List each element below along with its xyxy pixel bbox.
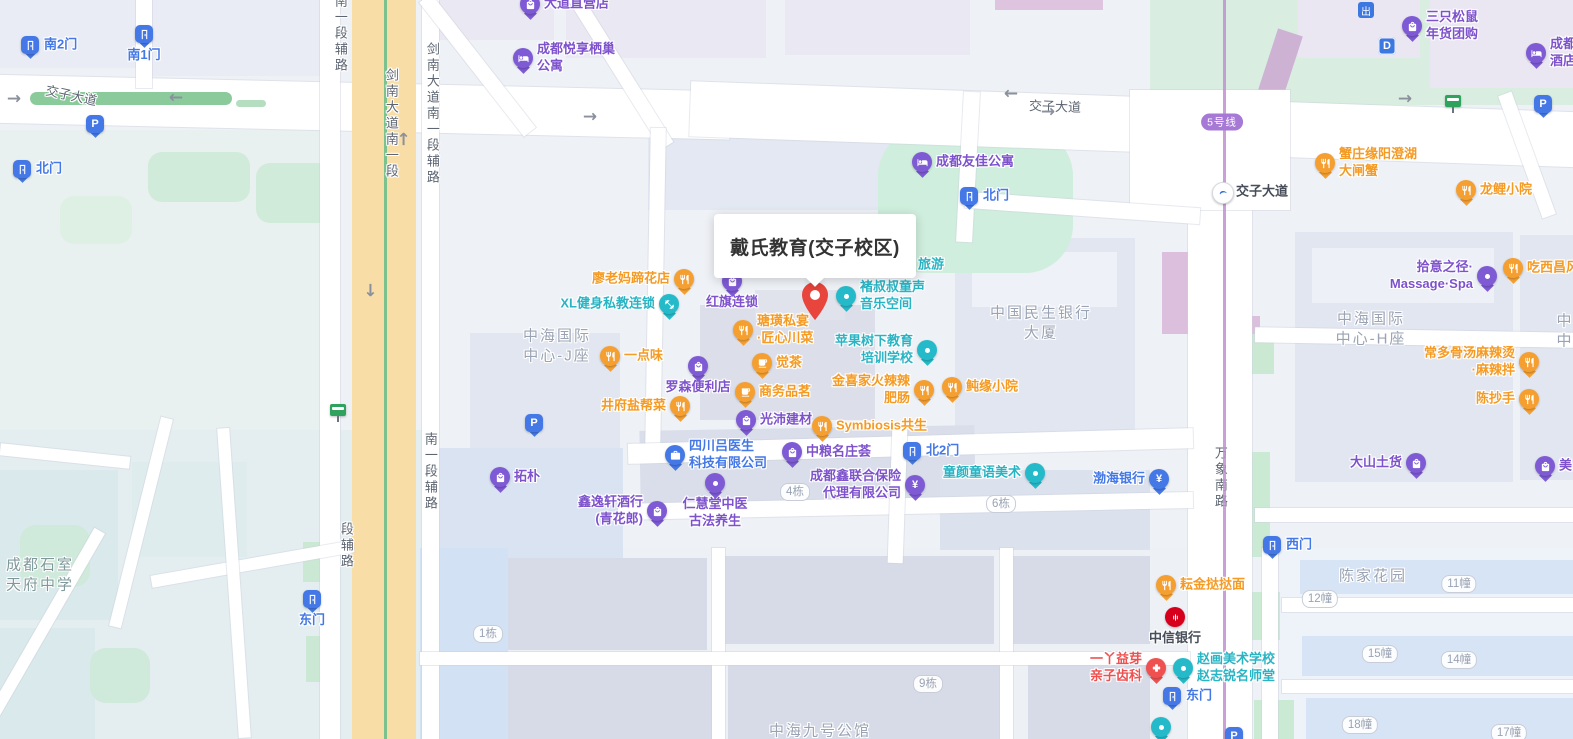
area-label: 中海国际 中心-H座 xyxy=(1336,310,1407,349)
poi-label: 南2门 xyxy=(44,37,77,54)
road-label: 剑南大道南一段辅路 xyxy=(423,42,440,186)
building-number-badge: 15幢 xyxy=(1362,645,1398,663)
yen-bank-icon: ¥ xyxy=(1149,469,1169,489)
building-block xyxy=(150,0,328,76)
poi-label: 拾意之径· Massage·Spa xyxy=(1390,259,1473,293)
exit-sign-icon: 出 xyxy=(1358,2,1374,18)
dot-icon xyxy=(1477,266,1497,286)
poi-label: 蟹庄缘阳澄湖 大闸蟹 xyxy=(1339,146,1417,180)
building-number-badge: 17幢 xyxy=(1491,724,1527,739)
bike-lane xyxy=(236,100,266,107)
utensils-icon xyxy=(670,396,690,416)
area-label: 中海国际 中心-J座 xyxy=(523,327,591,366)
parking-icon: P xyxy=(86,115,104,133)
road-label: 南一段辅路 xyxy=(421,432,438,512)
poi-label: 苹果树下教育 培训学校 xyxy=(835,333,913,367)
poi-label: 北门 xyxy=(36,161,62,178)
poi-label: 耘金挞挞面 xyxy=(1180,577,1245,594)
poi-label: 大道直营店 xyxy=(544,0,609,12)
direction-arrow-icon: → xyxy=(169,87,183,107)
utensils-icon xyxy=(733,320,753,340)
bag-icon xyxy=(1406,453,1426,473)
poi-label: 井府盐帮菜 xyxy=(601,398,666,415)
gate-door-icon xyxy=(960,187,978,205)
direction-arrow-icon: → xyxy=(394,132,414,146)
bag-icon xyxy=(490,467,510,487)
building-number-badge: 4栋 xyxy=(780,483,810,501)
area-label: 陈家花园 xyxy=(1339,566,1407,586)
poi-label: 交子大道 xyxy=(1236,184,1288,201)
bag-icon xyxy=(688,356,708,376)
road-chenjia xyxy=(1282,680,1573,693)
dot-icon xyxy=(1173,658,1193,678)
poi-label: 渤海银行 xyxy=(1093,471,1145,488)
cross-icon xyxy=(1146,658,1166,678)
bus-pole xyxy=(337,416,339,422)
gate-door-icon xyxy=(903,442,921,460)
bus-pole xyxy=(1452,107,1454,113)
poi-label: 四川吕医生 科技有限公司 xyxy=(689,438,767,472)
park xyxy=(148,152,250,202)
metro-exit-d-icon: D xyxy=(1378,37,1396,55)
metro-line-5 xyxy=(1223,0,1226,739)
building-row xyxy=(722,556,994,644)
building-number-badge: 11幢 xyxy=(1441,575,1476,593)
metro-line5-badge: 5号线 xyxy=(1201,114,1243,131)
building-number-badge: 12幢 xyxy=(1302,590,1338,608)
bus-window xyxy=(1447,98,1459,101)
poi-label: 一点味 xyxy=(624,348,663,365)
poi-label: 吃西昌风 xyxy=(1527,260,1573,277)
dot-icon xyxy=(1151,717,1171,737)
poi-label: 廖老妈蹄花店 xyxy=(592,271,670,288)
building-block xyxy=(648,138,896,210)
poi-label: 金喜家火辣辣 肥肠 xyxy=(832,373,910,407)
bus-stop-icon xyxy=(330,404,346,416)
bag-icon xyxy=(647,501,667,521)
cup-icon xyxy=(735,382,755,402)
map-canvas[interactable]: 交子大道交子大道南一段辅路剑南大道南一段剑南大道南一段辅路南一段辅路段辅路万象南… xyxy=(0,0,1573,739)
building-number-badge: 14幢 xyxy=(1441,651,1477,669)
direction-arrow-icon: → xyxy=(583,107,597,127)
bus-window xyxy=(332,407,344,410)
dot-icon xyxy=(836,286,856,306)
poi-label: 褚叔叔童声 音乐空间 xyxy=(860,279,925,313)
poi-label: 东门 xyxy=(1186,688,1212,705)
bag-icon xyxy=(1535,456,1555,476)
bed-icon xyxy=(912,152,932,172)
gate-door-icon xyxy=(13,160,31,178)
road-inner xyxy=(712,548,725,739)
poi-label: 仁慧堂中医 古法养生 xyxy=(682,496,747,530)
gate-door-icon xyxy=(135,25,153,43)
poi-label: 成都鑫联合保险 代理有限公司 xyxy=(810,468,901,502)
poi-label: 龙鲤小院 xyxy=(1480,182,1532,199)
gate-door-icon xyxy=(303,590,321,608)
citic-bank-logo xyxy=(1165,607,1185,627)
poi-label: Symbiosis共生 xyxy=(836,418,927,435)
building-row xyxy=(1302,636,1573,676)
poi-label: 光沛建材 xyxy=(760,412,812,429)
poi-label: 三只松鼠 年货团购 xyxy=(1426,9,1478,43)
metro-structure xyxy=(995,0,1103,10)
bed-icon xyxy=(513,48,533,68)
gate-door-icon xyxy=(1163,687,1181,705)
poi-label: 北2门 xyxy=(926,443,959,460)
park xyxy=(60,196,132,244)
road-chenjia xyxy=(1262,548,1278,739)
map-pin-icon xyxy=(800,281,830,321)
building-number-badge: 9栋 xyxy=(913,675,943,693)
area-label: 中国民生银行 大厦 xyxy=(990,304,1092,343)
cup-icon xyxy=(752,353,772,373)
direction-arrow-icon: → xyxy=(7,89,21,109)
utensils-icon xyxy=(1503,258,1523,278)
poi-label: 成都悦享栖巢 公寓 xyxy=(537,41,615,75)
utensils-icon xyxy=(914,380,934,400)
area-label: 中海九号公馆 xyxy=(769,721,871,739)
poi-label: 拓朴 xyxy=(514,469,540,486)
direction-arrow-icon: → xyxy=(1041,102,1055,122)
road-label: 南一段辅路 xyxy=(331,0,348,74)
building-block xyxy=(785,0,970,55)
popup-title: 戴氏教育(交子校区) xyxy=(730,233,900,260)
direction-arrow-icon: → xyxy=(1398,89,1412,109)
park xyxy=(90,648,150,703)
selected-location-pin[interactable] xyxy=(800,281,830,326)
poi-label: 赵画美术学校 赵志锐名师堂 xyxy=(1197,651,1275,685)
gate-door-icon xyxy=(1263,536,1281,554)
poi-label: XL健身私教连锁 xyxy=(560,296,655,313)
utensils-icon xyxy=(674,269,694,289)
direction-arrow-icon: → xyxy=(360,283,380,297)
poi-label: 东门 xyxy=(299,612,325,629)
road-inner xyxy=(420,652,1190,665)
road-label: 剑南大道南一段 xyxy=(382,68,399,180)
building-number-badge: 6栋 xyxy=(986,495,1016,513)
bag-icon xyxy=(782,442,802,462)
poi-label: 常多骨汤麻辣烫 ·麻辣拌 xyxy=(1424,345,1515,379)
building-number-badge: 1栋 xyxy=(473,625,503,643)
parking-icon: P xyxy=(525,414,543,432)
utensils-icon xyxy=(1156,575,1176,595)
poi-label: 觉茶 xyxy=(776,355,802,372)
metro-station-icon xyxy=(1212,182,1234,204)
parking-icon: P xyxy=(1225,727,1243,739)
bag-icon xyxy=(736,410,756,430)
dot-icon xyxy=(917,340,937,360)
poi-label: 陈抄手 xyxy=(1476,391,1515,408)
utensils-icon xyxy=(600,346,620,366)
utensils-icon xyxy=(1315,153,1335,173)
poi-label: 中粮名庄荟 xyxy=(806,444,871,461)
building-number-badge: 18幢 xyxy=(1342,716,1378,734)
utensils-icon xyxy=(1519,389,1539,409)
bag-icon xyxy=(1402,16,1422,36)
poi-label: 南1门 xyxy=(127,47,160,64)
gate-door-icon xyxy=(21,36,39,54)
poi-label: 中信银行 xyxy=(1149,630,1201,647)
road-inner xyxy=(1000,548,1013,739)
poi-popup[interactable]: 戴氏教育(交子校区) xyxy=(714,214,916,278)
poi-label: 成都友佳公寓 xyxy=(936,154,1014,171)
dumbbell-icon xyxy=(659,294,679,314)
bus-stop-icon xyxy=(1445,95,1461,107)
dot-icon xyxy=(1025,463,1045,483)
road-east xyxy=(1255,508,1573,522)
poi-label: 商务品茗 xyxy=(759,384,811,401)
road-label: 段辅路 xyxy=(337,522,354,570)
utensils-icon xyxy=(1456,180,1476,200)
poi-label: 鲀缘小院 xyxy=(966,379,1018,396)
poi-label: 大山土货 xyxy=(1350,455,1402,472)
poi-label: 西门 xyxy=(1286,537,1312,554)
bed-icon xyxy=(1526,43,1546,63)
briefcase-icon xyxy=(665,445,685,465)
poi-label: 旅游 xyxy=(918,257,944,274)
parking-icon: P xyxy=(1534,95,1552,113)
building-block xyxy=(0,0,138,68)
poi-label: 鑫逸轩酒行 (青花郎) xyxy=(578,494,643,528)
poi-label: 童颜童语美术 xyxy=(943,465,1021,482)
utensils-icon xyxy=(942,377,962,397)
direction-arrow-icon: → xyxy=(1004,83,1018,103)
area-label: 中 中 xyxy=(1556,312,1573,351)
area-label: 成都石室 天府中学 xyxy=(6,556,74,595)
dot-icon xyxy=(705,473,725,493)
poi-label: 北门 xyxy=(983,188,1009,205)
yen-bank-icon: ¥ xyxy=(905,475,925,495)
poi-label: 一丫益芽 亲子齿科 xyxy=(1090,651,1142,685)
utensils-icon xyxy=(812,416,832,436)
poi-label: 成都 酒店 xyxy=(1550,36,1573,70)
building-row xyxy=(1008,556,1150,644)
utensils-icon xyxy=(1519,352,1539,372)
poi-label: 美 xyxy=(1559,458,1572,475)
